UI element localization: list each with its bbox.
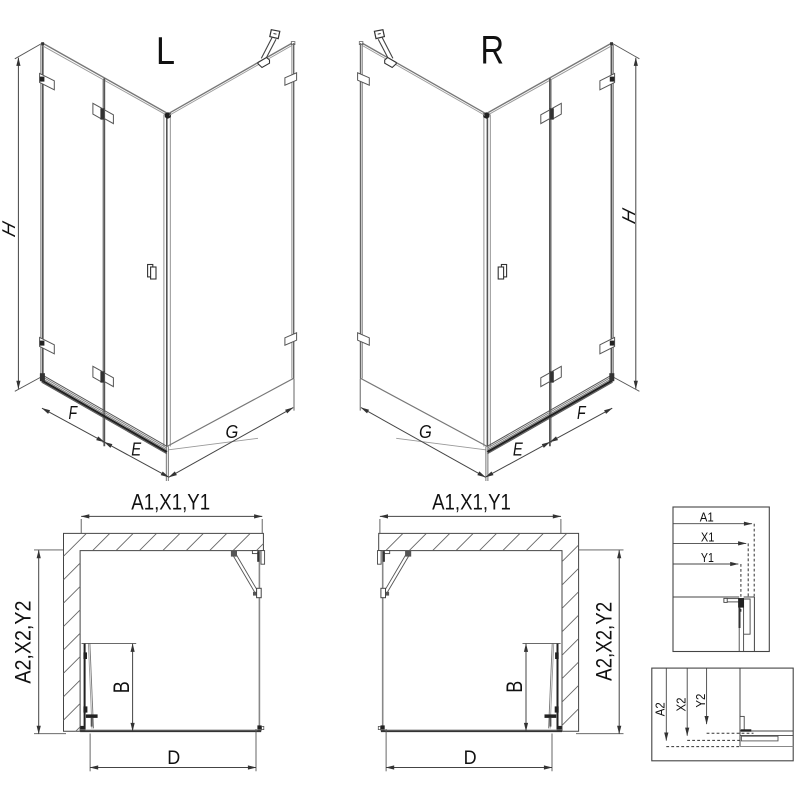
- svg-text:F: F: [577, 402, 587, 423]
- svg-text:A1: A1: [700, 510, 714, 525]
- svg-text:A2,X2,Y2: A2,X2,Y2: [592, 602, 617, 681]
- svg-text:A1,X1,Y1: A1,X1,Y1: [131, 490, 210, 515]
- svg-text:D: D: [167, 747, 180, 769]
- svg-text:Y2: Y2: [693, 694, 708, 708]
- svg-text:G: G: [419, 421, 432, 442]
- svg-text:B: B: [502, 681, 527, 693]
- svg-text:D: D: [464, 747, 477, 769]
- svg-text:B: B: [109, 681, 134, 693]
- svg-text:X1: X1: [701, 530, 715, 545]
- svg-text:A2,X2,Y2: A2,X2,Y2: [10, 601, 35, 684]
- svg-text:L: L: [156, 30, 175, 73]
- svg-text:E: E: [131, 438, 141, 459]
- svg-text:F: F: [69, 402, 79, 423]
- svg-text:Y1: Y1: [701, 550, 714, 565]
- svg-text:G: G: [226, 421, 239, 442]
- svg-text:A1,X1,Y1: A1,X1,Y1: [432, 490, 511, 515]
- svg-text:R: R: [481, 29, 505, 73]
- svg-text:E: E: [513, 438, 523, 459]
- svg-text:X2: X2: [674, 698, 689, 712]
- svg-text:A2: A2: [652, 702, 667, 716]
